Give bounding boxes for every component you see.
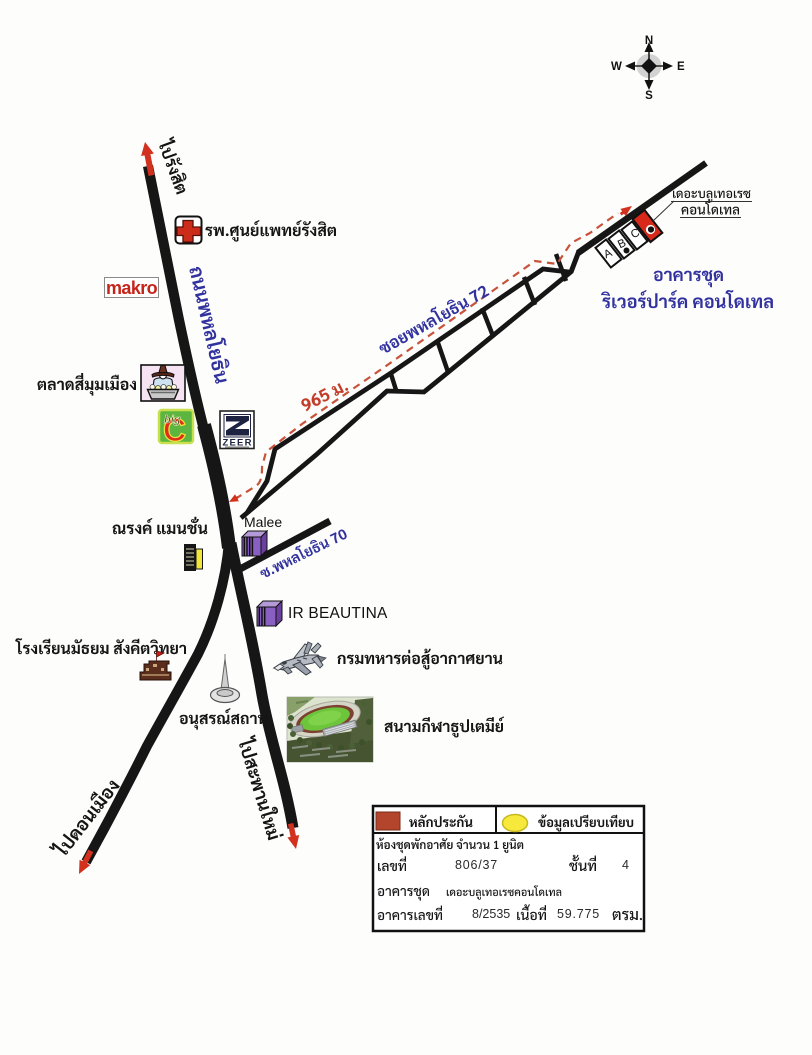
svg-text:4: 4	[622, 858, 629, 872]
svg-text:8/2535: 8/2535	[472, 907, 510, 921]
svg-text:big: big	[164, 414, 181, 426]
svg-text:IR BEAUTINA: IR BEAUTINA	[288, 605, 388, 622]
svg-text:806/37: 806/37	[455, 858, 498, 872]
svg-text:S: S	[645, 90, 653, 102]
svg-text:59.775: 59.775	[557, 907, 600, 921]
svg-text:Malee: Malee	[244, 514, 282, 530]
svg-text:N: N	[645, 35, 653, 47]
svg-text:makro: makro	[106, 278, 158, 298]
svg-text:W: W	[611, 61, 622, 73]
svg-text:E: E	[677, 61, 685, 73]
